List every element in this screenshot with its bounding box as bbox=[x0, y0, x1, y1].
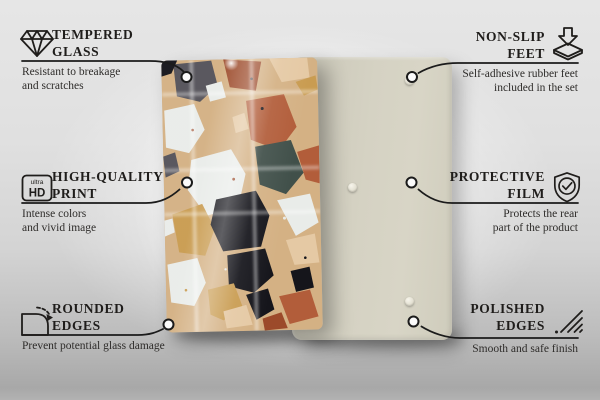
desc-line: Resistant to breakage bbox=[22, 66, 120, 80]
glass-front-panel bbox=[161, 57, 323, 332]
feature-title-protective-film: PROTECTIVE FILM bbox=[450, 169, 545, 202]
title-line: EDGES bbox=[470, 318, 545, 335]
desc-line: part of the product bbox=[493, 222, 578, 236]
feature-desc-tempered-glass: Resistant to breakage and scratches bbox=[22, 66, 120, 93]
rounded-corner-icon bbox=[19, 305, 56, 337]
title-line: NON-SLIP bbox=[476, 29, 545, 46]
non-slip-feet-icon bbox=[551, 26, 585, 62]
feature-title-polished-edges: POLISHED EDGES bbox=[470, 301, 545, 334]
desc-line: Prevent potential glass damage bbox=[22, 340, 165, 354]
title-line: HIGH-QUALITY bbox=[52, 169, 163, 186]
desc-line: and scratches bbox=[22, 80, 120, 94]
title-line: TEMPERED bbox=[52, 27, 133, 44]
feature-desc-rounded-edges: Prevent potential glass damage bbox=[22, 340, 165, 354]
title-line: PROTECTIVE bbox=[450, 169, 545, 186]
feature-desc-high-quality-print: Intense colors and vivid image bbox=[22, 208, 96, 235]
ultra-hd-icon: ultra HD bbox=[21, 174, 53, 202]
feature-desc-protective-film: Protects the rear part of the product bbox=[493, 208, 578, 235]
title-line: GLASS bbox=[52, 44, 133, 61]
feature-title-tempered-glass: TEMPERED GLASS bbox=[52, 27, 133, 60]
diamond-icon bbox=[19, 28, 55, 58]
desc-line: Intense colors bbox=[22, 208, 96, 222]
product-infographic: TEMPERED GLASS Resistant to breakage and… bbox=[0, 0, 600, 400]
feature-desc-non-slip-feet: Self-adhesive rubber feet included in th… bbox=[462, 68, 578, 95]
shield-check-icon bbox=[552, 171, 582, 203]
title-line: POLISHED bbox=[470, 301, 545, 318]
ultra-label: ultra bbox=[31, 179, 44, 186]
rubber-foot bbox=[405, 297, 414, 306]
glass-sheen bbox=[161, 57, 323, 332]
desc-line: Self-adhesive rubber feet bbox=[462, 68, 578, 82]
feature-desc-polished-edges: Smooth and safe finish bbox=[472, 343, 578, 357]
feature-title-high-quality-print: HIGH-QUALITY PRINT bbox=[52, 169, 163, 202]
feature-title-rounded-edges: ROUNDED EDGES bbox=[52, 301, 124, 334]
feature-title-non-slip-feet: NON-SLIP FEET bbox=[476, 29, 545, 62]
desc-line: Protects the rear bbox=[493, 208, 578, 222]
desc-line: included in the set bbox=[462, 82, 578, 96]
rubber-foot bbox=[348, 183, 357, 192]
title-line: FILM bbox=[450, 186, 545, 203]
rubber-foot bbox=[405, 76, 414, 85]
title-line: EDGES bbox=[52, 318, 124, 335]
title-line: PRINT bbox=[52, 186, 163, 203]
desc-line: and vivid image bbox=[22, 222, 96, 236]
title-line: ROUNDED bbox=[52, 301, 124, 318]
desc-line: Smooth and safe finish bbox=[472, 343, 578, 357]
polished-edges-icon bbox=[553, 303, 585, 335]
title-line: FEET bbox=[476, 46, 545, 63]
hd-label: HD bbox=[29, 188, 46, 200]
